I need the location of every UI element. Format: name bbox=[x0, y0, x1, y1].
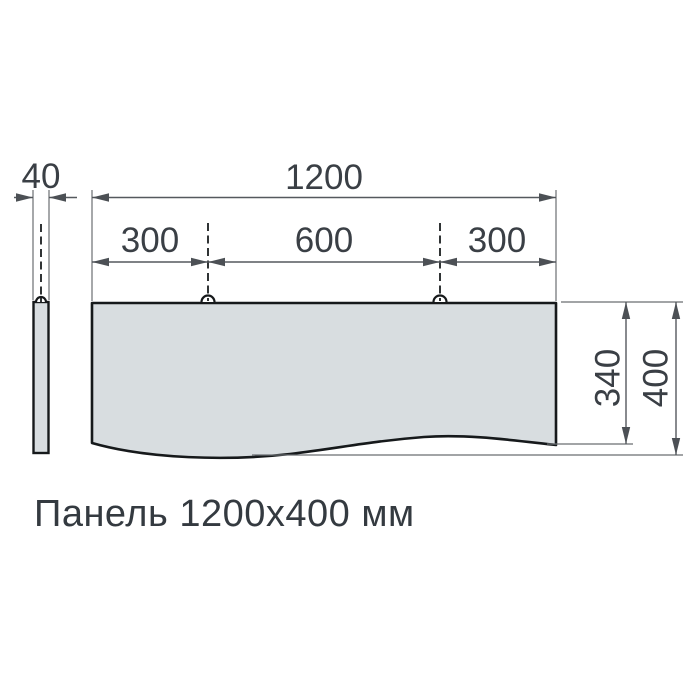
dim-front-height-label: 340 bbox=[589, 349, 628, 407]
dim-thickness-label: 40 bbox=[22, 157, 61, 196]
dim-right-offset-label: 300 bbox=[468, 221, 526, 260]
arrowhead-icon bbox=[622, 302, 630, 319]
arrowhead-icon bbox=[92, 258, 109, 266]
side-panel-body bbox=[34, 302, 49, 453]
dimension-hanger-spacing: 600 bbox=[208, 221, 440, 266]
arrowhead-icon bbox=[191, 258, 208, 266]
dimension-total-width: 1200 bbox=[92, 158, 556, 202]
dim-hanger-spacing-label: 600 bbox=[295, 221, 353, 260]
drawing-canvas: 40 1200 300 600 300 340 400 bbox=[0, 0, 700, 700]
arrowhead-icon bbox=[423, 258, 440, 266]
arrowhead-icon bbox=[208, 258, 225, 266]
panel-technical-drawing: 40 1200 300 600 300 340 400 bbox=[0, 0, 700, 700]
dim-left-offset-label: 300 bbox=[121, 221, 179, 260]
panel-outline bbox=[92, 303, 556, 458]
caption: Панель 1200x400 мм bbox=[34, 493, 415, 535]
dim-total-width-label: 1200 bbox=[285, 158, 363, 197]
arrowhead-icon bbox=[92, 193, 109, 201]
dimension-left-offset: 300 bbox=[92, 221, 208, 266]
arrowhead-icon bbox=[539, 258, 556, 266]
dimension-total-height: 400 bbox=[637, 302, 681, 455]
arrowhead-icon bbox=[440, 258, 457, 266]
arrowhead-icon bbox=[672, 438, 680, 455]
arrowhead-icon bbox=[672, 302, 680, 319]
dimension-front-height: 340 bbox=[589, 302, 631, 444]
side-view bbox=[34, 224, 49, 453]
dimension-thickness: 40 bbox=[14, 157, 77, 202]
arrowhead-icon bbox=[539, 193, 556, 201]
dim-total-height-label: 400 bbox=[637, 349, 676, 407]
dimension-right-offset: 300 bbox=[440, 221, 556, 266]
arrowhead-icon bbox=[622, 427, 630, 444]
